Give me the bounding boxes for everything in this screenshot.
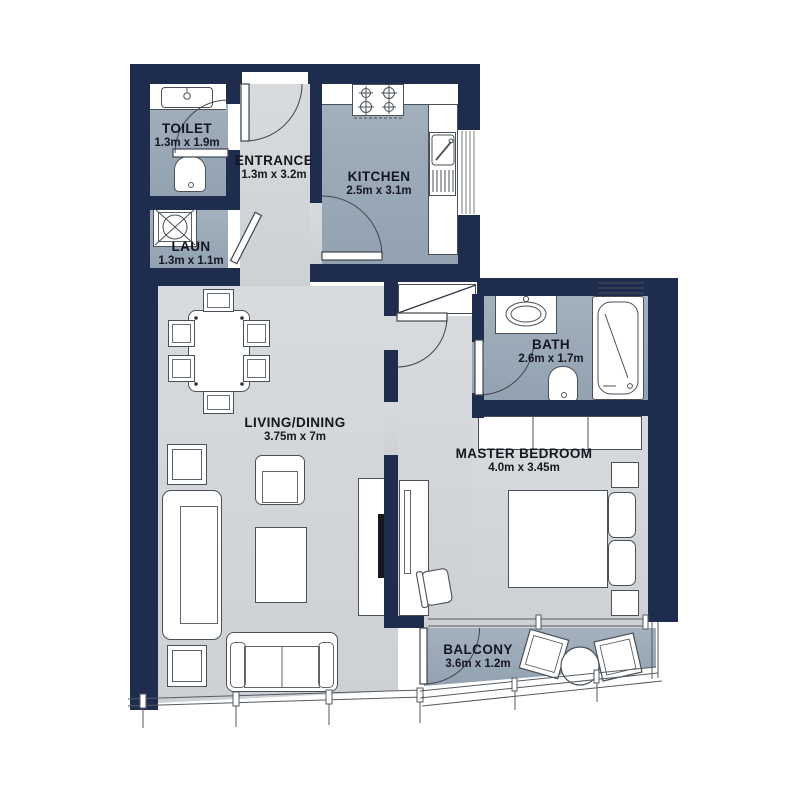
laundry-name: LAUN	[158, 239, 223, 254]
wall-top-right	[308, 64, 480, 84]
bath-name: BATH	[518, 337, 583, 352]
bathtub-icon	[592, 296, 644, 400]
dining-table-icon	[188, 310, 250, 392]
wall-left-lower	[130, 286, 158, 710]
bedroom-dims: 4.0m x 3.45m	[456, 462, 593, 474]
balcony-name: BALCONY	[443, 642, 513, 657]
floor-plan: TOILET 1.3m x 1.9m ENTRANCE 1.3m x 3.2m …	[0, 0, 800, 800]
living-name: LIVING/DINING	[244, 415, 345, 430]
sofa-seat	[180, 506, 218, 624]
wall-toilet-partition-top	[226, 84, 240, 104]
desk-shelf	[404, 490, 411, 574]
washbasin-icon	[161, 87, 213, 108]
laundry-label: LAUN 1.3m x 1.1m	[158, 239, 223, 267]
pillow-bottom-icon	[608, 540, 636, 586]
kitchen-doorway-floor	[310, 203, 322, 264]
kitchen-name: KITCHEN	[346, 169, 411, 184]
wall-kitchen-left	[310, 84, 322, 203]
armchair-seat	[262, 471, 298, 503]
wall-living-bedroom-partition	[384, 455, 398, 628]
wall-hall-stub-mid	[384, 350, 398, 402]
closet-icon	[398, 284, 476, 314]
toilet-dims: 1.3m x 1.9m	[154, 137, 219, 149]
kitchen-window-icon	[458, 130, 480, 215]
bath-dims: 2.6m x 1.7m	[518, 353, 583, 365]
wall-kitchen-right-top	[458, 64, 480, 130]
bath-wc-icon	[548, 366, 578, 402]
living-label: LIVING/DINING 3.75m x 7m	[244, 415, 345, 443]
loveseat-arm-right	[318, 642, 334, 688]
kitchen-dims: 2.5m x 3.1m	[346, 185, 411, 197]
side-table-1-icon	[167, 444, 207, 485]
kitchen-sink-icon	[429, 132, 456, 196]
entrance-floor	[240, 84, 310, 290]
toilet-name: TOILET	[154, 121, 219, 136]
wall-left-upper	[130, 64, 150, 286]
bedroom-label: MASTER BEDROOM 4.0m x 3.45m	[456, 446, 593, 474]
wall-hall-stub-top	[384, 282, 398, 316]
entrance-label: ENTRANCE 1.3m x 3.2m	[235, 153, 313, 181]
nightstand-top-icon	[611, 462, 639, 488]
wc-icon	[174, 156, 206, 192]
pillow-top-icon	[608, 492, 636, 538]
loveseat-arm-left	[230, 642, 246, 688]
coffee-table-icon	[255, 527, 307, 603]
dining-chair-left1-icon	[168, 320, 195, 347]
nightstand-bottom-icon	[611, 590, 639, 616]
dining-chair-top-icon	[203, 289, 234, 312]
dining-chair-right2-icon	[243, 355, 270, 382]
wall-toilet-laundry	[150, 196, 228, 210]
side-table-2-icon	[167, 645, 207, 687]
wall-right	[648, 278, 678, 622]
dining-chair-right1-icon	[243, 320, 270, 347]
loveseat-seat	[244, 646, 320, 688]
balcony-dims: 3.6m x 1.2m	[443, 658, 513, 670]
double-bed-icon	[508, 490, 608, 588]
entrance-name: ENTRANCE	[235, 153, 313, 168]
bath-label: BATH 2.6m x 1.7m	[518, 337, 583, 365]
wall-kitchen-bottom	[310, 264, 480, 282]
laundry-dims: 1.3m x 1.1m	[158, 255, 223, 267]
dining-chair-bottom-icon	[203, 391, 234, 414]
living-dims: 3.75m x 7m	[244, 431, 345, 443]
wardrobe-icon	[478, 416, 642, 450]
balcony-label: BALCONY 3.6m x 1.2m	[443, 642, 513, 670]
wall-entry-header	[242, 64, 308, 72]
wall-bath-left-top	[472, 294, 484, 342]
wall-kitchen-right-bottom	[458, 215, 480, 282]
bedroom-name: MASTER BEDROOM	[456, 446, 593, 461]
passage-floor	[384, 402, 398, 455]
dining-chair-left2-icon	[168, 355, 195, 382]
wall-bath-bottom	[472, 400, 650, 416]
toilet-label: TOILET 1.3m x 1.9m	[154, 121, 219, 149]
wall-laundry-bottom	[130, 268, 240, 286]
wall-balcony-stub	[398, 616, 424, 628]
entrance-dims: 1.3m x 3.2m	[235, 169, 313, 181]
kitchen-label: KITCHEN 2.5m x 3.1m	[346, 169, 411, 197]
stove-icon	[352, 84, 404, 116]
bath-counter	[495, 294, 557, 334]
